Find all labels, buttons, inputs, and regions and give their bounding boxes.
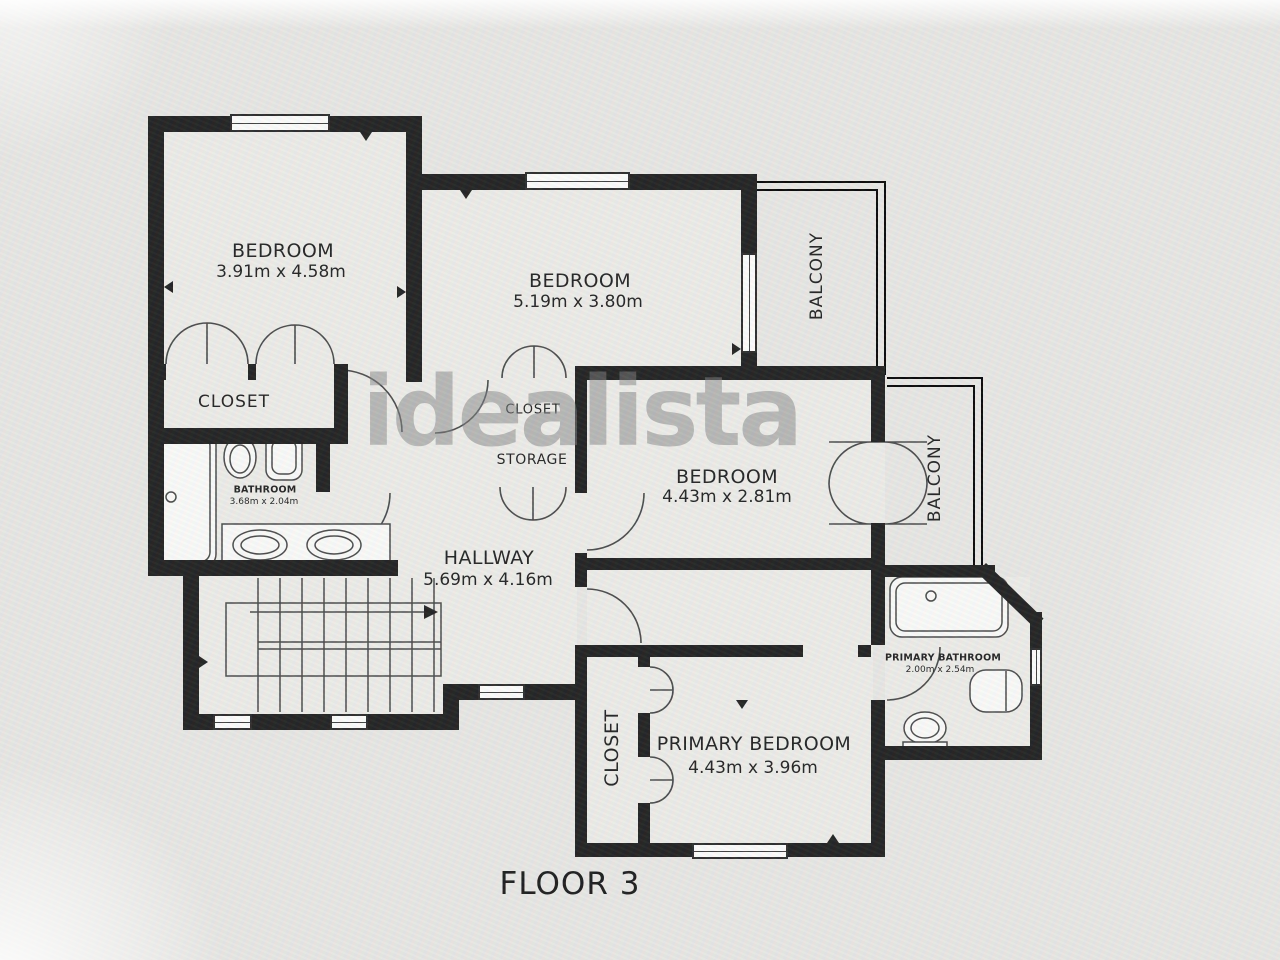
room-label-hallway: HALLWAY xyxy=(444,547,534,569)
label-closet-primary: CLOSET xyxy=(601,709,623,786)
stairs-direction-arrow xyxy=(424,605,438,619)
label-closet-bedroom1: CLOSET xyxy=(198,392,270,412)
room-label-primary-bedroom: PRIMARY BEDROOM xyxy=(657,733,851,755)
window xyxy=(525,172,630,190)
stairs xyxy=(226,578,441,712)
label-balcony-right: BALCONY xyxy=(925,434,945,522)
room-dims-bedroom2: 5.19m x 3.80m xyxy=(513,292,643,312)
floor-title: FLOOR 3 xyxy=(500,866,641,902)
window xyxy=(213,714,252,730)
label-balcony-top: BALCONY xyxy=(807,232,827,320)
room-label-bedroom2: BEDROOM xyxy=(529,270,631,292)
room-dims-bathroom: 3.68m x 2.04m xyxy=(230,497,299,507)
room-dims-primary-bathroom: 2.00m x 2.54m xyxy=(906,665,975,675)
room-dims-bedroom1: 3.91m x 4.58m xyxy=(216,262,346,282)
toilet-side xyxy=(970,670,1022,712)
room-label-bedroom1: BEDROOM xyxy=(232,240,334,262)
label-closet-hall: CLOSET xyxy=(505,403,560,418)
floor-plan-photo: BEDROOM 3.91m x 4.58m BEDROOM 5.19m x 3.… xyxy=(0,0,1280,960)
room-dims-primary-bedroom: 4.43m x 3.96m xyxy=(688,758,818,778)
window xyxy=(1030,648,1042,686)
balcony-door-glazing xyxy=(741,253,757,353)
room-label-bedroom3: BEDROOM xyxy=(676,466,778,488)
window xyxy=(330,714,368,730)
label-storage: STORAGE xyxy=(497,452,568,468)
window xyxy=(478,684,525,700)
room-dims-hallway: 5.69m x 4.16m xyxy=(423,570,553,590)
room-label-bathroom: BATHROOM xyxy=(234,485,297,496)
window xyxy=(692,843,788,859)
window xyxy=(230,114,330,132)
room-dims-bedroom3: 4.43m x 2.81m xyxy=(662,487,792,507)
room-label-primary-bathroom: PRIMARY BATHROOM xyxy=(885,653,1001,664)
